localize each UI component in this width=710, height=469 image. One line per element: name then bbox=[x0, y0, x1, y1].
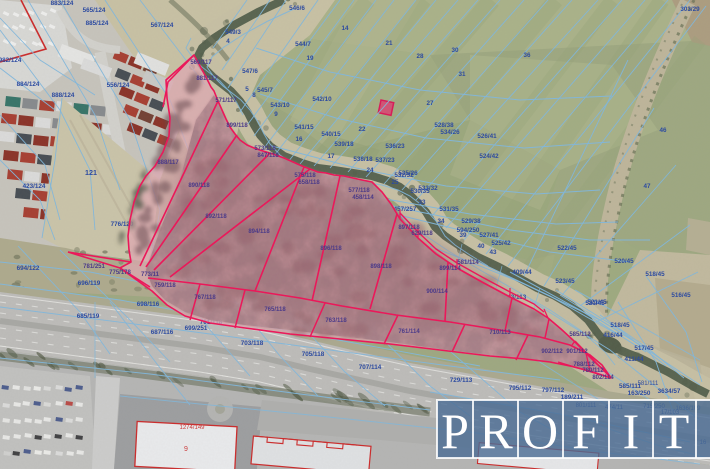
svg-text:R: R bbox=[479, 403, 513, 459]
svg-text:P: P bbox=[441, 403, 469, 459]
svg-text:I: I bbox=[623, 403, 640, 459]
svg-text:O: O bbox=[522, 403, 558, 459]
svg-text:F: F bbox=[572, 403, 600, 459]
svg-text:T: T bbox=[659, 403, 690, 459]
